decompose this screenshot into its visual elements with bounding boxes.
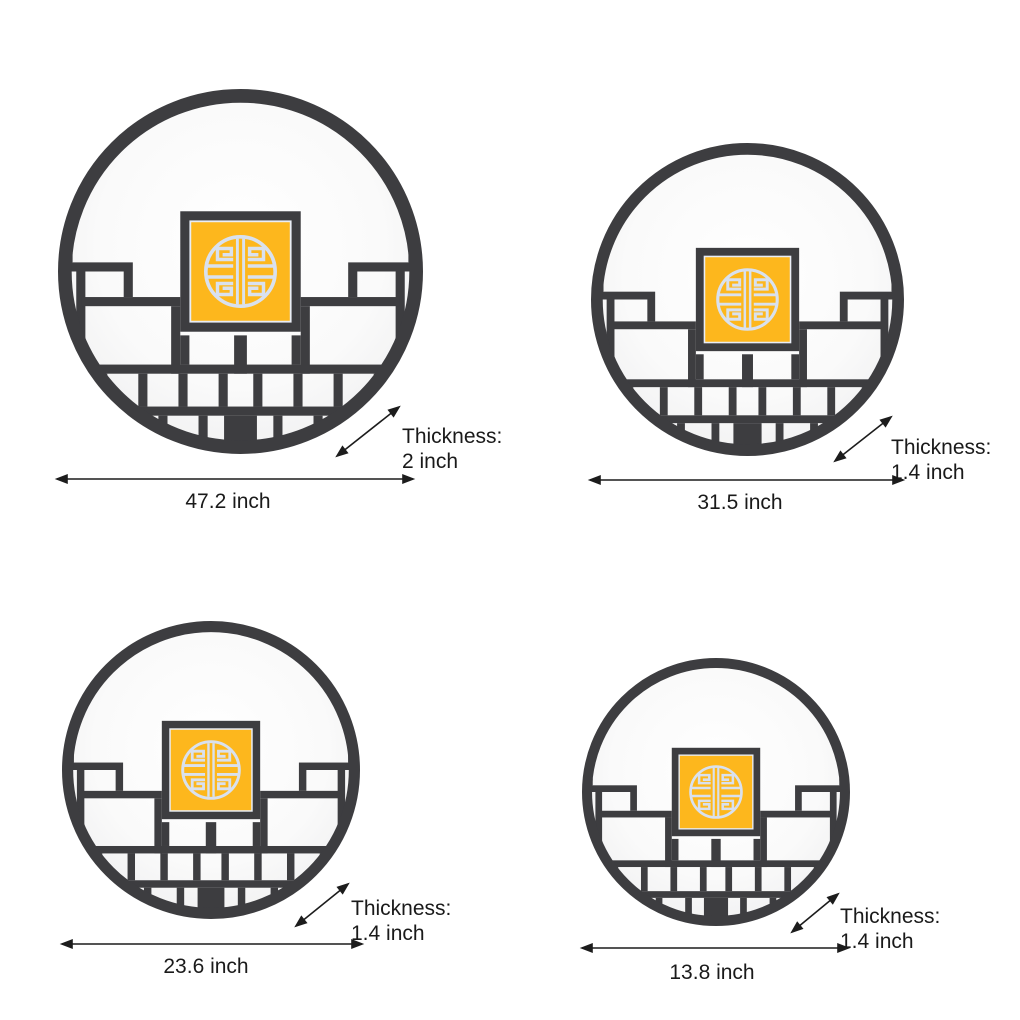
width-dimension-arrow-bottom-right: [582, 944, 848, 952]
thickness-title: Thickness:: [402, 424, 502, 449]
lamp-photo-23-inch: [62, 621, 360, 919]
width-dimension-label: 23.6 inch: [116, 955, 296, 979]
thickness-title: Thickness:: [891, 435, 991, 460]
thickness-value: 1.4 inch: [840, 929, 940, 954]
thickness-value: 1.4 inch: [891, 460, 991, 485]
width-dimension-arrow-bottom-left: [62, 940, 362, 948]
lamp-photo-13-inch: [582, 658, 850, 926]
thickness-dimension-label: Thickness: 1.4 inch: [351, 896, 451, 946]
thickness-dimension-label: Thickness: 1.4 inch: [891, 435, 991, 485]
width-dimension-label: 31.5 inch: [650, 491, 830, 515]
width-dimension-label: 13.8 inch: [622, 961, 802, 985]
width-dimension-label: 47.2 inch: [138, 490, 318, 514]
thickness-dimension-label: Thickness: 2 inch: [402, 424, 502, 474]
lamp-photo-31-inch: [591, 143, 904, 456]
width-dimension-arrow-top-left: [57, 475, 413, 483]
thickness-title: Thickness:: [351, 896, 451, 921]
lamp-photo-47-inch: [58, 89, 423, 454]
thickness-value: 1.4 inch: [351, 921, 451, 946]
thickness-dimension-label: Thickness: 1.4 inch: [840, 904, 940, 954]
thickness-value: 2 inch: [402, 449, 502, 474]
thickness-title: Thickness:: [840, 904, 940, 929]
size-chart-canvas: 47.2 inch 31.5 inch 23.6 inch 13.8 inch …: [0, 0, 1020, 1020]
width-dimension-arrow-top-right: [590, 476, 903, 484]
